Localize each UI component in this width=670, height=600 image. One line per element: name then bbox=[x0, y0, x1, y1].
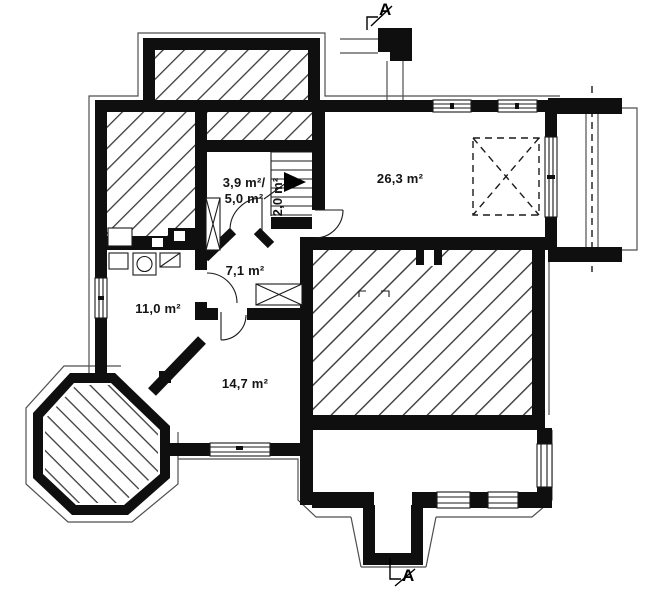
stairs-direction-arrow bbox=[284, 172, 306, 192]
section-label-bottom: A bbox=[402, 566, 414, 586]
hatch-layer bbox=[45, 50, 532, 503]
window-bottom bbox=[210, 443, 270, 456]
fixture-sink bbox=[160, 253, 180, 267]
door-arc-living bbox=[315, 210, 343, 238]
right-terrace-outline bbox=[548, 108, 637, 250]
floor-plan: 3,9 m²/ 5,0 m² 2,0 m² 26,3 m² 7,1 m² 11,… bbox=[0, 0, 670, 600]
plan-drawing bbox=[0, 0, 670, 600]
fixture-washer bbox=[133, 253, 156, 275]
room-label-rec-room: 14,7 m² bbox=[210, 376, 280, 391]
diagonal-wall bbox=[152, 340, 202, 392]
fixture-wide-cabinet bbox=[256, 284, 302, 305]
door-arc-rec-room bbox=[221, 312, 246, 340]
door-jamb bbox=[257, 231, 271, 245]
section-label-top: A bbox=[379, 0, 391, 20]
room-label-utility-room: 11,0 m² bbox=[125, 301, 191, 316]
hatched-area-top-extension bbox=[155, 50, 308, 100]
fixture-box bbox=[109, 253, 128, 269]
basement-entry-wall bbox=[363, 553, 423, 565]
right-terrace-wall-stub bbox=[548, 247, 622, 262]
right-terrace-wall-stub bbox=[548, 98, 622, 114]
hatched-area-garage bbox=[313, 250, 532, 415]
room-label-stair-area: 2,0 m² bbox=[270, 173, 284, 221]
window-top-1 bbox=[433, 100, 471, 112]
window-top-2 bbox=[498, 100, 537, 112]
hatched-area-top-strip bbox=[207, 112, 312, 140]
wall-pier bbox=[159, 371, 171, 383]
hatched-area-upper-left-room bbox=[107, 112, 195, 236]
room-label-living-area: 26,3 m² bbox=[360, 171, 440, 186]
dashed-skylight bbox=[473, 138, 539, 215]
window-left bbox=[95, 278, 107, 318]
room-label-hallway: 7,1 m² bbox=[215, 263, 275, 278]
garage-vent-notch bbox=[416, 250, 442, 266]
wall-niche bbox=[108, 228, 132, 246]
window-terrace-door bbox=[545, 137, 557, 217]
